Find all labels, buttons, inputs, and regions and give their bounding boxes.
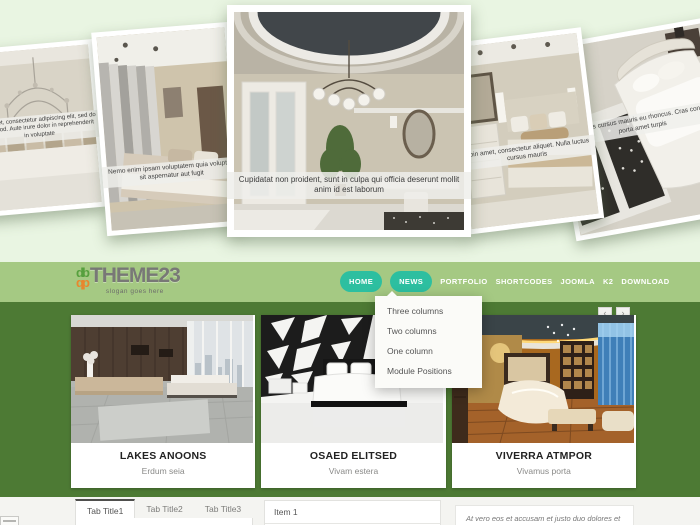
portfolio-card-1-title: LAKES ANOONS bbox=[71, 450, 255, 462]
hero-slide-3[interactable]: Cupidatat non proident, sunt in culpa qu… bbox=[227, 5, 471, 237]
nav-item-portfolio[interactable]: PORTFOLIO bbox=[440, 277, 487, 286]
testimonial-line-1: At vero eos et accusam et justo duo dolo… bbox=[466, 514, 623, 525]
logo-slogan: slogan goes here bbox=[106, 288, 180, 295]
portfolio-card-1-subtitle: Erdum seia bbox=[71, 466, 255, 476]
hero-slide-2[interactable]: Nemo enim ipsam voluptatem quia voluptas… bbox=[91, 22, 245, 236]
dropdown-item-three-columns[interactable]: Three columns bbox=[375, 301, 482, 321]
portfolio-card-2-subtitle: Vivam estera bbox=[261, 466, 445, 476]
portfolio-card-1[interactable]: LAKES ANOONS Erdum seia bbox=[71, 315, 255, 488]
portfolio-slider-section: ‹ › bbox=[0, 302, 700, 497]
hero-slide-2-image bbox=[97, 27, 240, 230]
navbar: db qp THEME23 slogan goes here HOME NEWS… bbox=[0, 262, 700, 302]
hero-carousel: Sit amet, consectetur adipiscing elit, s… bbox=[0, 0, 700, 262]
nav-item-shortcodes[interactable]: SHORTCODES bbox=[496, 277, 553, 286]
portfolio-card-3-footer: VIVERRA ATMPOR Vivamus porta bbox=[452, 443, 636, 488]
portfolio-card-2-footer: OSAED ELITSED Vivam estera bbox=[261, 443, 445, 488]
nav-item-home[interactable]: HOME bbox=[340, 271, 382, 292]
dropdown-item-one-column[interactable]: One column bbox=[375, 341, 482, 361]
nav-item-news[interactable]: NEWS bbox=[390, 271, 432, 292]
dropdown-item-module-positions[interactable]: Module Positions bbox=[375, 361, 482, 381]
logo-monogram-icon: db qp bbox=[76, 268, 88, 288]
dropdown-item-two-columns[interactable]: Two columns bbox=[375, 321, 482, 341]
logo-monogram-bottom: qp bbox=[76, 278, 88, 288]
portfolio-cards: LAKES ANOONS Erdum seia bbox=[71, 315, 636, 488]
nav-item-download[interactable]: DOWNLOAD bbox=[621, 277, 669, 286]
logo-title: THEME23 bbox=[90, 264, 180, 287]
bedroom-curtains-illustration bbox=[97, 27, 240, 230]
accordion-panel: Item 1 bbox=[264, 500, 441, 525]
bedroom-mirror-illustration bbox=[449, 33, 598, 229]
bottom-panels: Tab Title1 Tab Title2 Tab Title3 Item 1 … bbox=[0, 497, 700, 525]
hero-slide-3-caption: Cupidatat non proident, sunt in culpa qu… bbox=[227, 172, 471, 199]
portfolio-card-2-title: OSAED ELITSED bbox=[261, 450, 445, 462]
accordion-header-item1[interactable]: Item 1 bbox=[265, 501, 440, 524]
hero-slide-4-image bbox=[449, 33, 598, 229]
nav-item-k2[interactable]: K2 bbox=[603, 277, 613, 286]
tab-content-panel bbox=[75, 518, 253, 525]
portfolio-card-1-footer: LAKES ANOONS Erdum seia bbox=[71, 443, 255, 488]
portfolio-card-1-image bbox=[71, 315, 255, 443]
logo[interactable]: db qp THEME23 slogan goes here bbox=[76, 266, 180, 295]
testimonial-panel: At vero eos et accusam et justo duo dolo… bbox=[455, 505, 634, 525]
main-menu: HOME NEWS PORTFOLIO SHORTCODES JOOMLA K2… bbox=[340, 271, 670, 292]
portfolio-card-3-title: VIVERRA ATMPOR bbox=[452, 450, 636, 462]
news-dropdown-menu: Three columns Two columns One column Mod… bbox=[375, 296, 482, 388]
page: Sit amet, consectetur adipiscing elit, s… bbox=[0, 0, 700, 525]
portfolio-card-3-subtitle: Vivamus porta bbox=[452, 466, 636, 476]
nav-item-joomla[interactable]: JOOMLA bbox=[561, 277, 595, 286]
hero-slide-1[interactable]: Sit amet, consectetur adipiscing elit, s… bbox=[0, 39, 107, 217]
partial-overlay-fragment bbox=[0, 516, 19, 525]
gray-living-room-illustration bbox=[71, 315, 253, 443]
